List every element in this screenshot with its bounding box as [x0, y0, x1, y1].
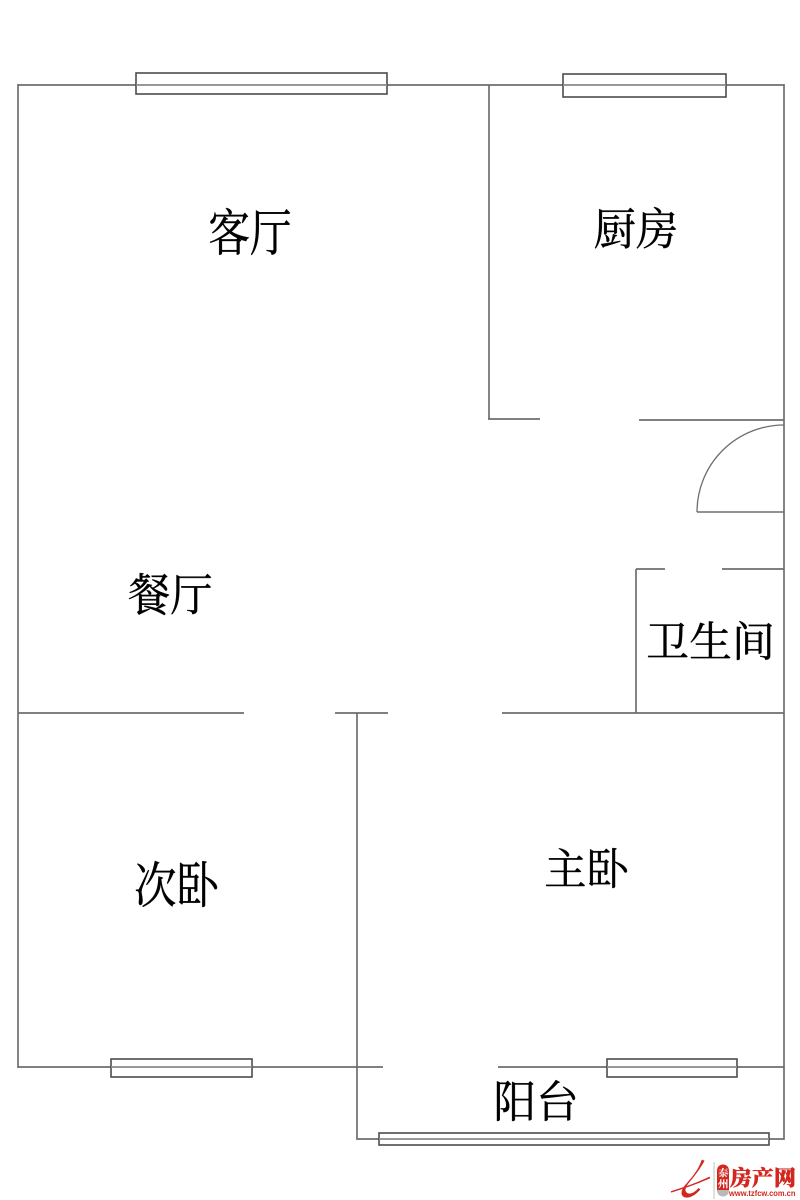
svg-text:www.tzfcw.com.cn: www.tzfcw.com.cn [728, 1189, 796, 1198]
